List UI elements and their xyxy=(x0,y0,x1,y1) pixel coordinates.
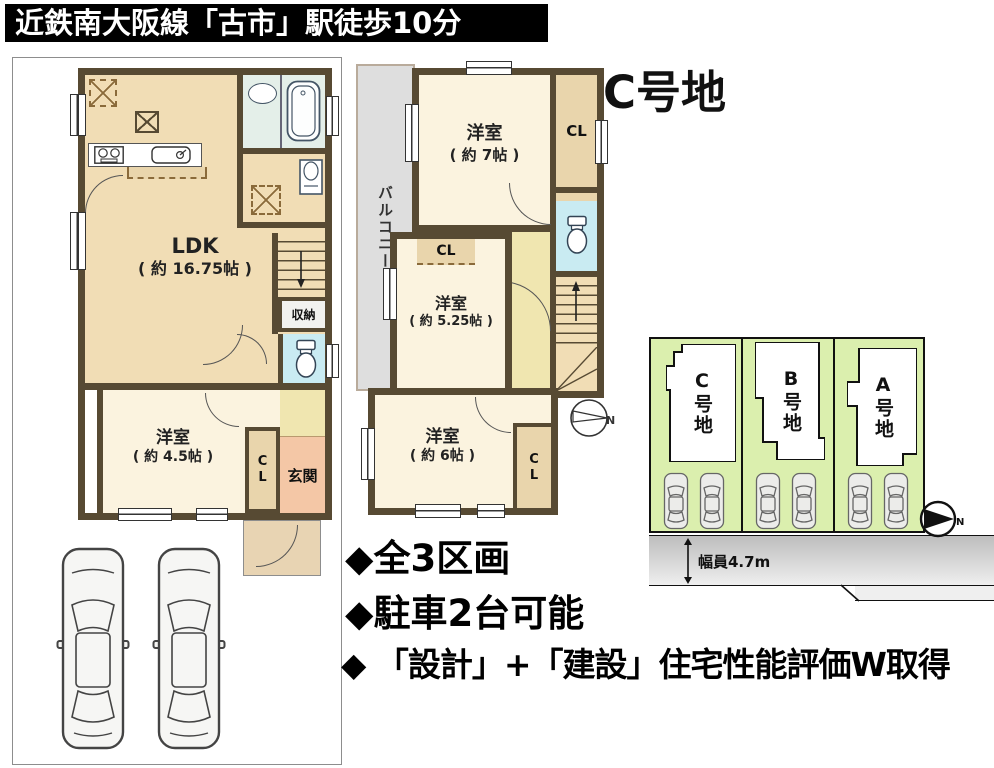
site-lot-label: A号地 xyxy=(872,374,892,440)
window xyxy=(466,61,512,75)
closet-2f-top: CL xyxy=(556,75,597,187)
north-letter: N xyxy=(606,414,615,427)
floor-hatch-icon xyxy=(89,79,117,107)
bathroom-divider xyxy=(280,75,282,148)
site-house-a: A号地 xyxy=(847,348,917,466)
window xyxy=(383,268,397,320)
window xyxy=(415,504,461,518)
window xyxy=(405,104,419,162)
road-width-arrow-icon xyxy=(682,538,694,584)
car-icon-small xyxy=(790,472,818,530)
window xyxy=(70,94,86,136)
window xyxy=(70,212,86,270)
toilet-icon xyxy=(291,339,321,379)
floor2-plan-mid: CL 洋室 ( 約 5.25帖 ) xyxy=(390,232,512,395)
window xyxy=(326,96,339,136)
car-icon-small xyxy=(846,472,874,530)
door-arc xyxy=(237,334,267,364)
feature-bullet-2: ◆駐車2台可能 xyxy=(345,583,584,637)
north-letter: N xyxy=(956,517,964,528)
car-icon-small xyxy=(882,472,910,530)
north-arrow-icon: N xyxy=(568,396,618,442)
lot-separator xyxy=(833,337,835,533)
site-lot-label: C号地 xyxy=(691,370,711,436)
room-size: ( 約 6帖 ) xyxy=(380,448,505,466)
stairs-down-arrow-icon xyxy=(296,251,306,289)
window xyxy=(196,508,228,521)
window xyxy=(477,504,505,518)
stairs-up xyxy=(556,277,597,391)
entrance-room: 玄関 xyxy=(280,436,325,513)
north-arrow-icon: N xyxy=(918,498,968,540)
room-name: 洋室 xyxy=(103,428,243,449)
road-extension xyxy=(855,586,994,601)
stove-icon xyxy=(94,146,124,164)
stairs-winder-lines xyxy=(556,347,597,391)
window xyxy=(595,120,608,164)
feature-bullet-1: ◆全3区画 xyxy=(345,528,510,582)
room-size: ( 約 5.25帖 ) xyxy=(397,314,505,330)
door-arc xyxy=(85,175,123,213)
site-lot-label: B号地 xyxy=(780,368,800,434)
flyer-canvas: 近鉄南大阪線「古市」駅徒歩10分 xyxy=(0,0,994,768)
toilet-icon xyxy=(562,215,592,255)
floor-hatch-icon xyxy=(251,185,281,215)
station-banner-text: 近鉄南大阪線「古市」駅徒歩10分 xyxy=(15,6,461,40)
room-name: 洋室 xyxy=(397,294,505,314)
room-size: ( 約 16.75帖 ) xyxy=(105,259,285,279)
room-name: 洋室 xyxy=(380,427,505,448)
ceiling-access-icon xyxy=(135,111,159,133)
window xyxy=(361,428,375,480)
stairs-up-arrow-icon xyxy=(571,281,581,321)
road-step-line xyxy=(840,584,864,604)
entrance-label: 玄関 xyxy=(287,465,317,486)
toilet-room-1f xyxy=(278,334,325,383)
bathtub-icon xyxy=(286,80,321,142)
floor2-plan-lower: 洋室 ( 約 6帖 ) CL xyxy=(368,388,558,515)
feature-bullet-3: ◆ 「設計」+「建設」住宅性能評価W取得 xyxy=(341,638,950,686)
window xyxy=(326,344,339,378)
window xyxy=(118,508,172,521)
closet-2f-mid: CL xyxy=(417,239,475,265)
toilet-room-2f xyxy=(556,201,597,271)
station-banner: 近鉄南大阪線「古市」駅徒歩10分 xyxy=(5,4,548,42)
car-icon-small xyxy=(754,472,782,530)
closet-label: CL xyxy=(566,122,587,140)
storage-room: 収納 xyxy=(278,297,325,332)
wall xyxy=(237,222,325,228)
washbasin-icon xyxy=(248,83,277,104)
closet-2f-bottom: CL xyxy=(513,423,551,508)
lot-title: C号地 xyxy=(603,56,726,121)
wall xyxy=(243,148,325,154)
stairs-down xyxy=(278,233,325,293)
counter-top xyxy=(556,193,597,201)
closet-label: CL xyxy=(527,452,542,484)
room-name: 洋室 xyxy=(427,123,542,146)
closet-label: CL xyxy=(255,454,270,486)
site-house-c: C号地 xyxy=(666,344,736,462)
car-icon-small xyxy=(662,472,690,530)
room-ldk-label: LDK ( 約 16.75帖 ) xyxy=(105,233,285,279)
kitchen-counter-edge xyxy=(127,167,207,179)
wall xyxy=(85,383,325,390)
room-size: ( 約 4.5帖 ) xyxy=(103,449,243,467)
room-bedroom6-label: 洋室 ( 約 6帖 ) xyxy=(380,427,505,466)
room-bedroom7-label: 洋室 ( 約 7帖 ) xyxy=(427,123,542,164)
floor1-plan: LDK ( 約 16.75帖 ) 収納 xyxy=(78,68,332,520)
kitchen-sink-icon xyxy=(151,146,191,164)
door-arc xyxy=(509,183,551,225)
lot-separator xyxy=(741,337,743,533)
site-house-b: B号地 xyxy=(755,342,825,460)
wall xyxy=(419,225,550,232)
room-size: ( 約 7帖 ) xyxy=(427,146,542,165)
storage-label: 収納 xyxy=(291,306,315,323)
closet-label: CL xyxy=(436,243,455,259)
room-bedroom525-label: 洋室 ( 約 5.25帖 ) xyxy=(397,294,505,330)
porch xyxy=(243,520,321,576)
vanity-sink-icon xyxy=(299,159,323,195)
room-bedroom45-label: 洋室 ( 約 4.5帖 ) xyxy=(103,428,243,467)
kitchen-counter xyxy=(88,143,202,167)
car-icon-small xyxy=(698,472,726,530)
hall-1f xyxy=(280,390,325,436)
closet-1f: CL xyxy=(245,427,280,513)
outside-gap xyxy=(85,390,97,513)
entrance-door-arc xyxy=(256,525,298,567)
bathroom xyxy=(243,75,325,148)
road-width-label: 幅員4.7m xyxy=(698,551,770,572)
car-icon xyxy=(152,545,226,753)
car-icon xyxy=(56,545,130,753)
room-name: LDK xyxy=(105,233,285,259)
